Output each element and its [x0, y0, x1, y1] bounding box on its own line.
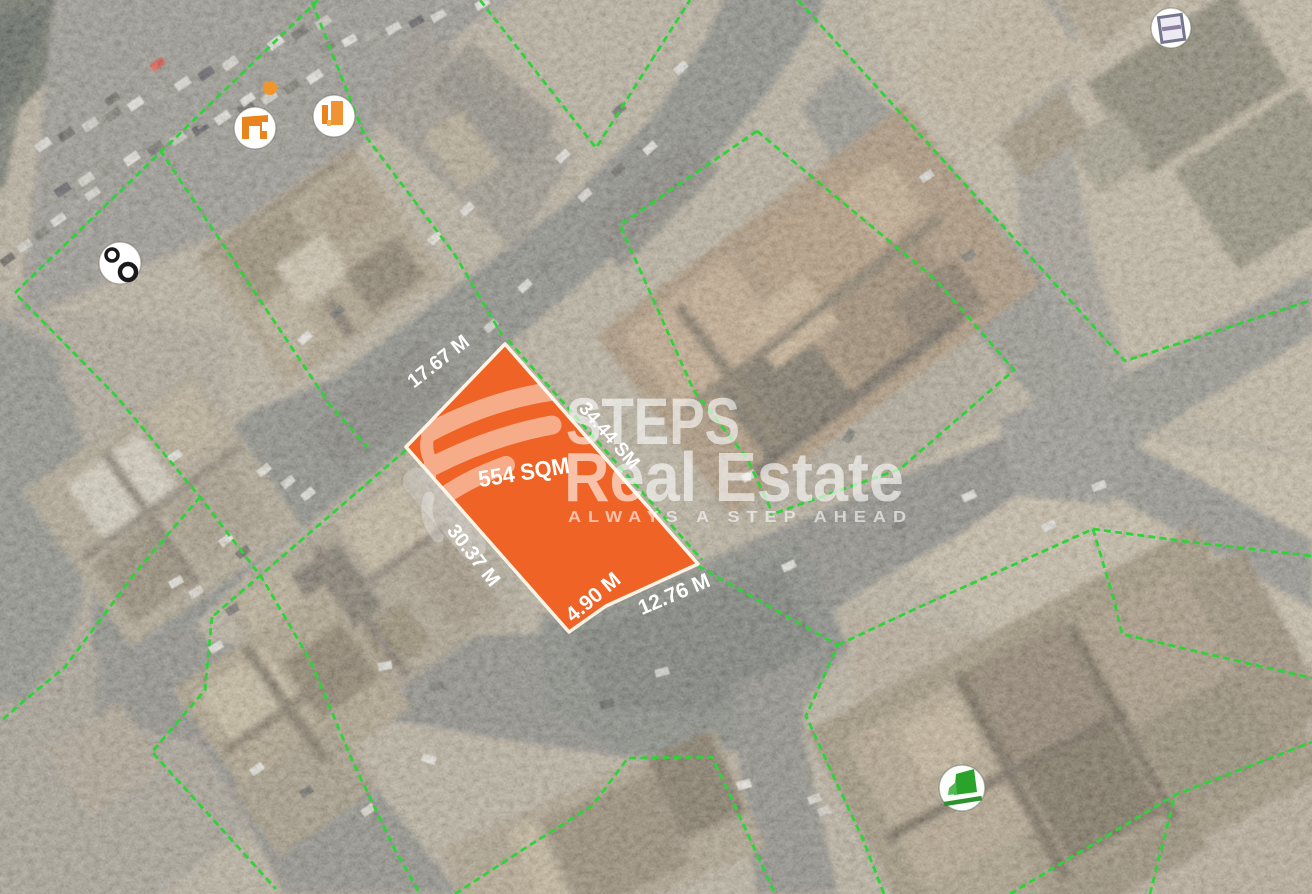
svg-text:Real Estate: Real Estate	[564, 438, 904, 516]
svg-text:ALWAYS A STEP AHEAD: ALWAYS A STEP AHEAD	[568, 509, 913, 526]
